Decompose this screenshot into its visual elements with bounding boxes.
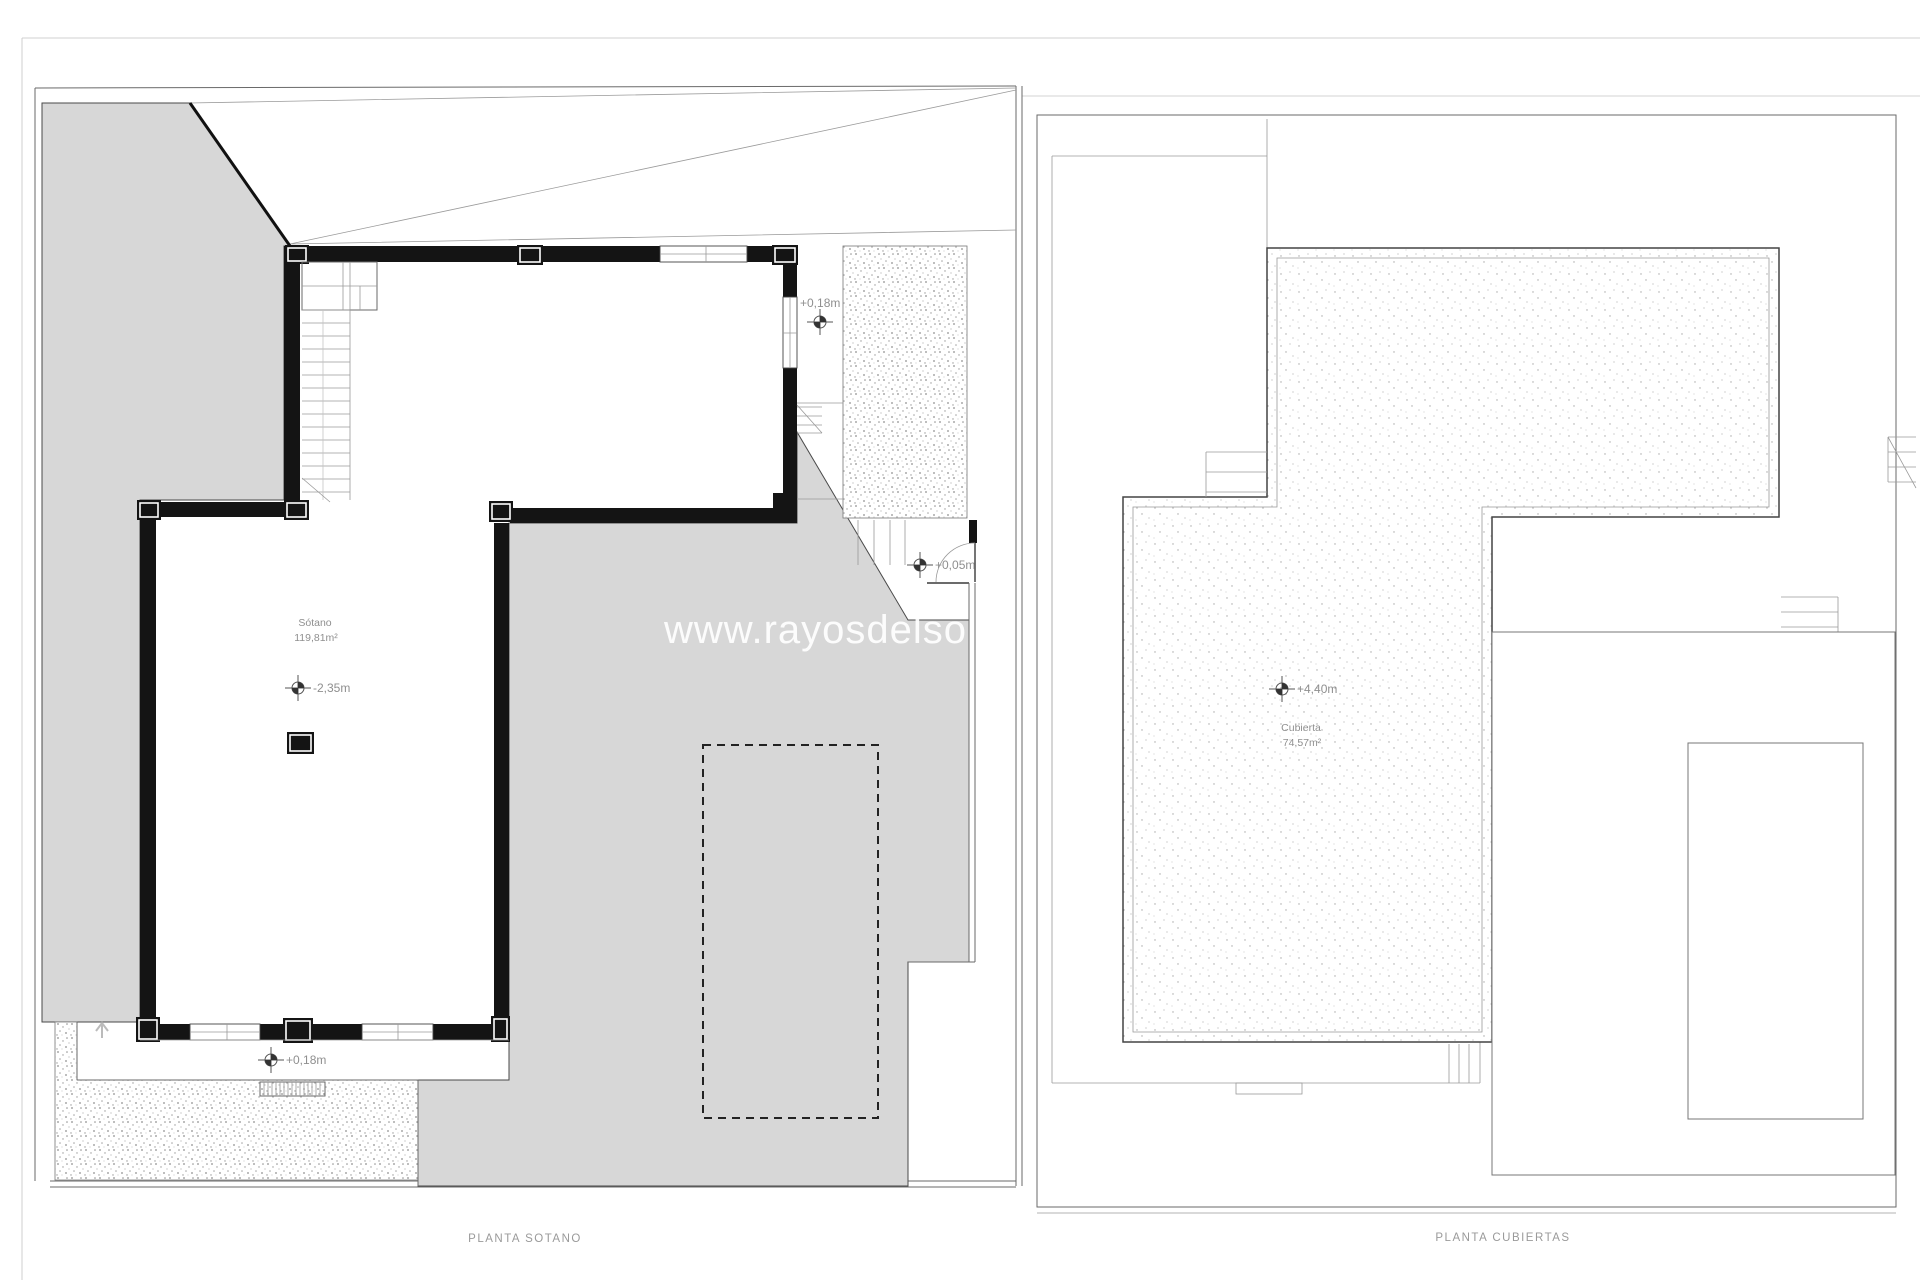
level-value: +0,18m bbox=[286, 1053, 326, 1067]
gravel-area-south bbox=[55, 1022, 418, 1180]
room-name: Sótano bbox=[298, 617, 331, 629]
window-north bbox=[660, 246, 747, 262]
staircase bbox=[302, 262, 377, 502]
watermark: www.rayosdelsol bbox=[664, 608, 977, 653]
entry-arrow-icon bbox=[96, 1023, 108, 1038]
roof-caption: PLANTA CUBIERTAS bbox=[1435, 1232, 1570, 1244]
drawing-sheet: { "watermark": { "text": "www.rayosdelso… bbox=[0, 0, 1920, 1280]
edge-stair-east bbox=[1888, 437, 1916, 488]
level-marker-center: -2,35m bbox=[285, 675, 350, 701]
basement-caption: PLANTA SOTANO bbox=[468, 1233, 582, 1245]
roof-step-lines-west bbox=[1206, 452, 1267, 497]
window-south-2 bbox=[362, 1024, 433, 1040]
ramp-sight-lines bbox=[190, 88, 1016, 244]
freestanding-column bbox=[287, 732, 314, 754]
level-value: +0,18m bbox=[800, 296, 840, 310]
room-area: 74,57m² bbox=[1283, 737, 1322, 749]
terrace-roof bbox=[1492, 632, 1895, 1175]
level-marker-porch: +0,18m bbox=[258, 1047, 326, 1073]
basement-room-label: Sótano 119,81m² bbox=[294, 617, 338, 644]
level-value: -2,35m bbox=[313, 681, 350, 695]
roof-step-lines-east bbox=[1781, 597, 1838, 632]
level-marker-entry: +0,05m bbox=[907, 552, 975, 578]
roof-plan: +4,40m Cubierta 74,57m² PLANTA CUBIERTAS bbox=[1037, 115, 1916, 1244]
terrace-left bbox=[42, 103, 290, 1022]
level-value: +0,05m bbox=[935, 558, 975, 572]
gravel-area-east bbox=[843, 246, 967, 518]
room-area: 119,81m² bbox=[294, 632, 338, 644]
level-value: +4,40m bbox=[1297, 682, 1337, 696]
window-east bbox=[783, 297, 797, 368]
basement-plan: +0,18m -2,35m +0,18m +0,05m Sótano 119,8… bbox=[35, 86, 1022, 1245]
level-marker-top-right: +0,18m bbox=[800, 296, 840, 335]
window-south-1 bbox=[190, 1024, 260, 1040]
room-name: Cubierta bbox=[1281, 722, 1321, 734]
